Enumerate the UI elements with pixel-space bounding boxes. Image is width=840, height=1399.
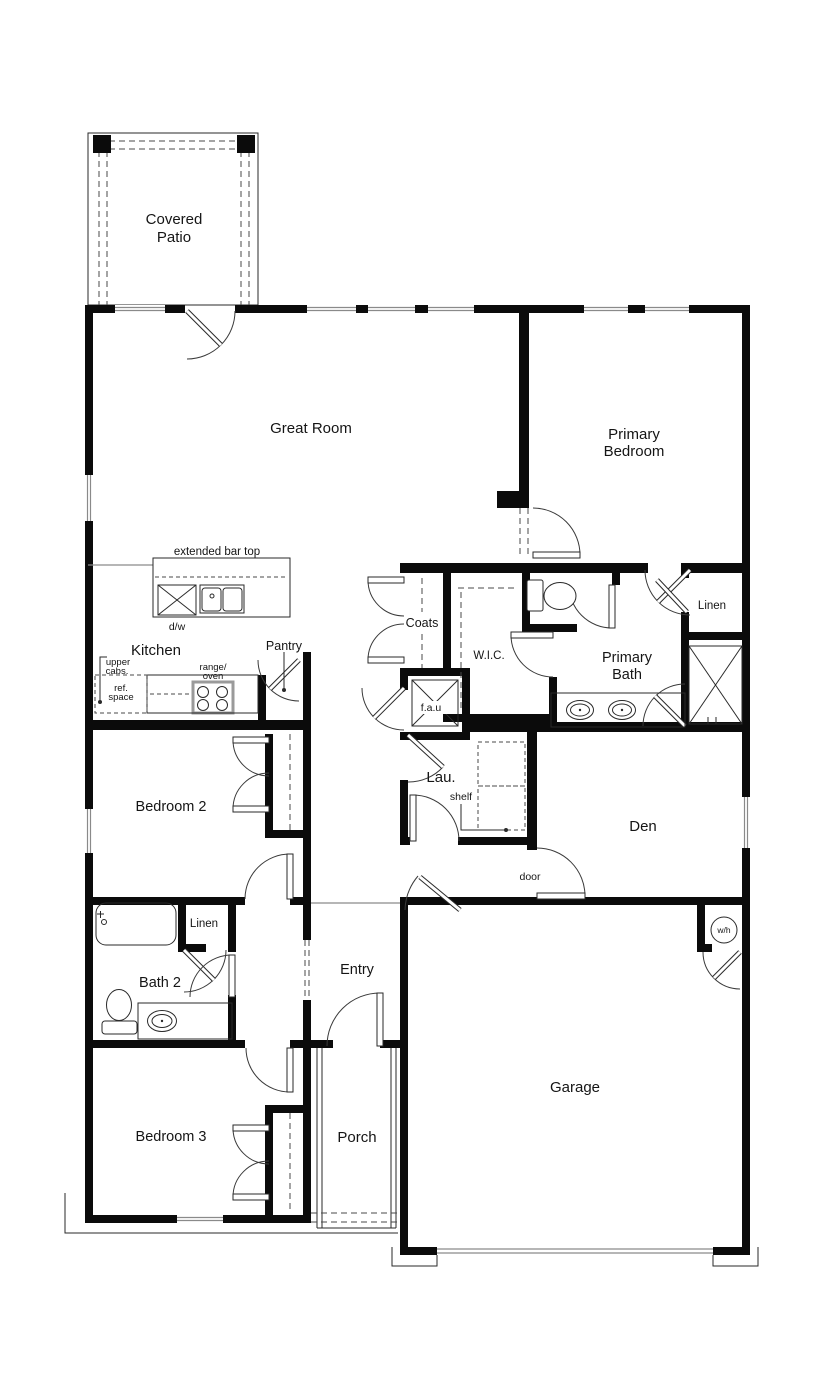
bedroom2-closet-doors (233, 737, 269, 812)
window (113, 305, 167, 313)
room-label-wic: W.I.C. (473, 650, 504, 662)
label-door: door (519, 871, 541, 883)
room-labels: Great Room Primary Bedroom extended bar … (106, 420, 731, 1146)
primary-toilet (527, 580, 576, 611)
label-upper-cabs-2: cabs. (106, 666, 129, 677)
room-label-bedroom2: Bedroom 2 (136, 799, 207, 815)
shelf-leader (461, 804, 508, 832)
label-dishwasher: d/w (169, 621, 186, 633)
room-label-bedroom3: Bedroom 3 (136, 1129, 207, 1145)
label-extended-bar-top: extended bar top (174, 546, 260, 558)
room-label-bath2: Bath 2 (139, 975, 181, 991)
room-label-primary-bath-2: Bath (612, 667, 642, 683)
kitchen-sink (200, 585, 244, 613)
room-label-pantry: Pantry (266, 639, 303, 653)
floorplan-drawing: Covered Patio (0, 0, 840, 1399)
bath2-toilet (102, 990, 137, 1035)
utility-fixtures (282, 578, 742, 1213)
window (85, 807, 93, 855)
window (643, 305, 691, 313)
primary-bedroom-door (533, 508, 580, 558)
bathtub (96, 903, 176, 945)
window (742, 795, 750, 850)
room-label-porch: Porch (337, 1129, 376, 1146)
patio-door (187, 311, 235, 359)
room-label-coats: Coats (406, 616, 439, 630)
toilet-room-door (569, 585, 615, 628)
dishwasher (158, 585, 196, 615)
primary-shower (689, 646, 742, 724)
covered-patio: Covered Patio (88, 133, 258, 305)
water-heater-door (703, 952, 740, 989)
room-label-kitchen: Kitchen (131, 642, 181, 659)
washer-dryer-space (478, 742, 525, 830)
bedroom3-closet-doors (233, 1125, 269, 1200)
range-oven (193, 682, 233, 713)
window (582, 305, 630, 313)
kitchen-island (153, 558, 290, 617)
room-label-garage: Garage (550, 1079, 600, 1096)
room-label-primary-bath-1: Primary (602, 650, 653, 666)
room-label-linen-hall: Linen (190, 918, 218, 930)
primary-vanity (551, 693, 685, 727)
window (305, 305, 358, 313)
window (85, 473, 93, 523)
room-label-covered-patio-1: Covered (146, 211, 203, 228)
bedroom2-door (245, 854, 293, 899)
label-fau: f.a.u (421, 702, 442, 714)
label-ref-space-2: space (108, 692, 133, 703)
front-door (327, 993, 383, 1046)
shower-door (643, 684, 685, 726)
label-door-group: door (514, 870, 547, 883)
room-label-great-room: Great Room (270, 420, 352, 437)
room-label-covered-patio-2: Patio (157, 229, 191, 246)
bedroom3-door (246, 1048, 293, 1092)
patio-post-right (237, 135, 255, 153)
room-label-laundry: Lau. (426, 769, 455, 786)
room-label-linen-primary: Linen (698, 600, 726, 612)
label-water-heater: w/h (716, 925, 731, 935)
window (426, 305, 476, 313)
floorplan-page: Covered Patio (0, 0, 840, 1399)
label-range-oven-2: oven (203, 671, 224, 682)
fau-door (362, 688, 404, 730)
patio-post-left (93, 135, 111, 153)
coats-double-doors (368, 577, 404, 663)
room-label-entry: Entry (340, 962, 375, 978)
bath2-vanity (138, 1003, 232, 1039)
room-label-den: Den (629, 818, 657, 835)
label-shelf: shelf (450, 791, 472, 803)
window (366, 305, 417, 313)
window (175, 1215, 225, 1223)
wic-door (511, 632, 553, 677)
room-label-primary-bedroom-1: Primary (608, 426, 660, 443)
room-label-primary-bedroom-2: Bedroom (604, 443, 665, 460)
